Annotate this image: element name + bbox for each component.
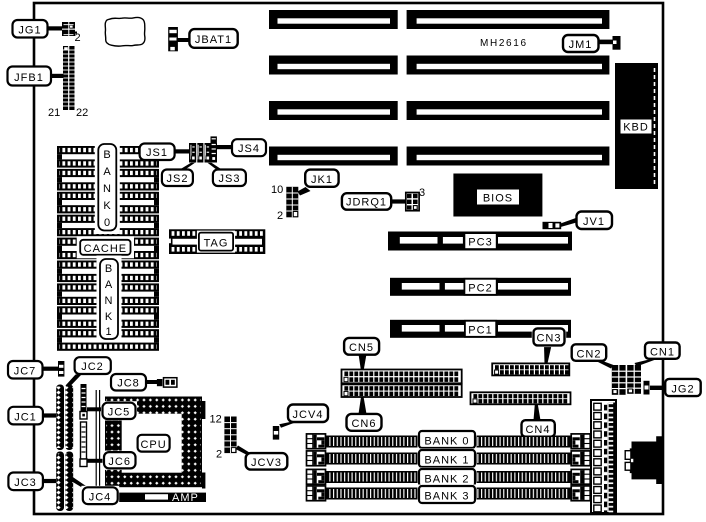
svg-text:CN5: CN5: [349, 342, 374, 354]
svg-text:12: 12: [210, 414, 222, 426]
svg-text:B: B: [105, 263, 113, 275]
svg-text:3: 3: [419, 187, 425, 199]
svg-text:10: 10: [271, 184, 283, 196]
svg-text:MH2616: MH2616: [480, 38, 526, 49]
svg-text:PC1: PC1: [468, 324, 492, 336]
svg-text:JV1: JV1: [583, 216, 605, 228]
svg-text:JG2: JG2: [671, 383, 694, 395]
svg-text:JC5: JC5: [108, 407, 131, 419]
svg-text:CN3: CN3: [536, 332, 561, 344]
svg-text:PC2: PC2: [468, 282, 492, 294]
svg-text:K: K: [103, 200, 111, 212]
svg-text:2: 2: [75, 32, 81, 44]
svg-text:JC7: JC7: [14, 366, 37, 378]
svg-text:PC3: PC3: [468, 237, 492, 249]
svg-text:JG1: JG1: [18, 25, 41, 37]
svg-text:AMP: AMP: [172, 492, 199, 504]
svg-text:A: A: [103, 166, 111, 178]
svg-text:JS4: JS4: [238, 143, 260, 155]
svg-text:JCV3: JCV3: [251, 457, 282, 469]
svg-text:BANK 3: BANK 3: [424, 490, 469, 502]
svg-text:JBAT1: JBAT1: [195, 34, 232, 46]
svg-text:JK1: JK1: [311, 174, 333, 186]
svg-text:JS2: JS2: [167, 173, 189, 185]
svg-text:B: B: [103, 149, 111, 161]
svg-text:BANK 1: BANK 1: [424, 454, 469, 466]
svg-text:CACHE: CACHE: [84, 243, 128, 255]
svg-text:JC4: JC4: [89, 491, 112, 503]
svg-text:JM1: JM1: [569, 39, 593, 51]
svg-text:JFB1: JFB1: [14, 72, 44, 84]
svg-text:CPU: CPU: [140, 439, 166, 451]
svg-text:JC2: JC2: [81, 361, 104, 373]
svg-text:JC8: JC8: [117, 378, 140, 390]
svg-text:A: A: [105, 279, 113, 291]
svg-text:CN4: CN4: [525, 424, 550, 436]
svg-text:JS3: JS3: [219, 173, 241, 185]
svg-text:CN2: CN2: [576, 348, 601, 360]
svg-text:KBD: KBD: [623, 122, 649, 134]
svg-text:1: 1: [105, 326, 112, 338]
svg-text:JS1: JS1: [146, 147, 168, 159]
svg-text:BIOS: BIOS: [483, 193, 513, 205]
svg-text:2: 2: [216, 449, 222, 461]
svg-text:K: K: [105, 311, 113, 323]
svg-text:0: 0: [104, 217, 111, 229]
svg-text:JC3: JC3: [14, 477, 37, 489]
svg-text:JC1: JC1: [14, 411, 37, 423]
svg-text:BANK 2: BANK 2: [424, 473, 469, 485]
svg-text:CN6: CN6: [351, 418, 376, 430]
svg-text:22: 22: [76, 107, 88, 119]
svg-text:N: N: [103, 183, 112, 195]
svg-text:JCV4: JCV4: [293, 409, 324, 421]
svg-text:JC6: JC6: [108, 456, 131, 468]
svg-text:2: 2: [277, 210, 283, 222]
svg-text:JDRQ1: JDRQ1: [346, 197, 387, 209]
svg-text:21: 21: [48, 107, 60, 119]
svg-text:BANK 0: BANK 0: [424, 435, 469, 447]
svg-text:N: N: [105, 295, 114, 307]
svg-text:CN1: CN1: [650, 346, 675, 358]
svg-text:TAG: TAG: [204, 238, 229, 250]
